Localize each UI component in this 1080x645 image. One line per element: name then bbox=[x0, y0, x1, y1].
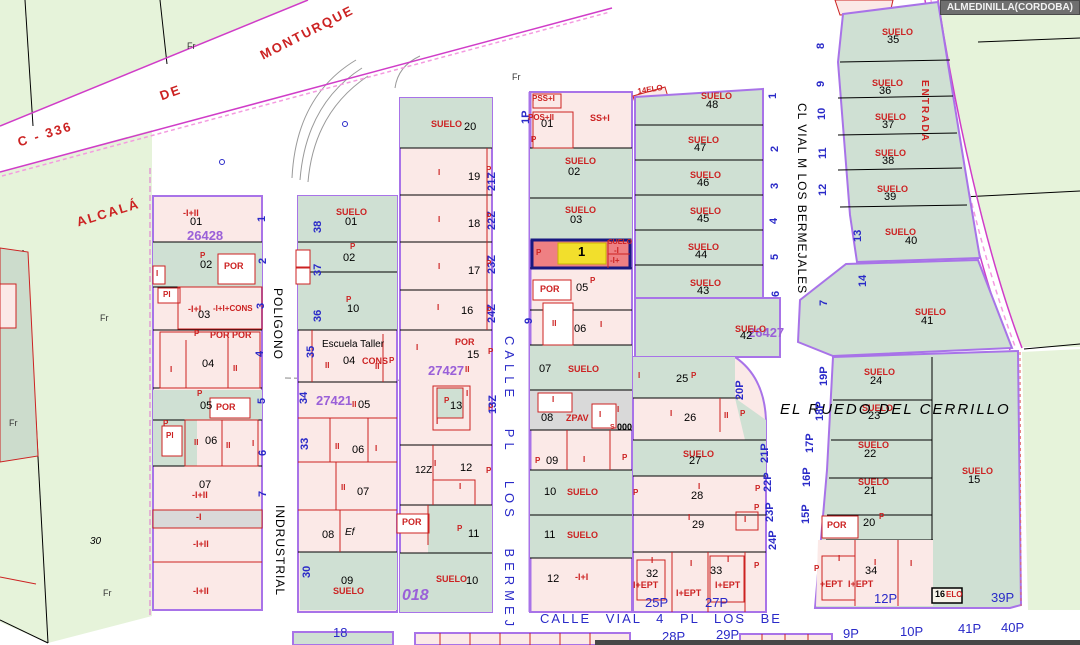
block-d[interactable] bbox=[530, 92, 632, 612]
block-a[interactable] bbox=[153, 196, 262, 610]
parcel-16-label-box bbox=[932, 588, 962, 603]
rustic-parcel-small[interactable] bbox=[0, 284, 16, 328]
selected-parcel-highlight bbox=[558, 243, 606, 264]
municipality-label: ALMEDINILLA(CORDOBA) bbox=[940, 0, 1080, 15]
block-b[interactable] bbox=[296, 196, 397, 612]
block-e[interactable] bbox=[633, 87, 780, 612]
bottom-bar bbox=[595, 640, 1080, 645]
block-c[interactable] bbox=[397, 98, 492, 612]
cadastral-map-viewport[interactable]: C - 336DEMONTURQUEALCALÁFrFrFrFrFr302642… bbox=[0, 0, 1080, 645]
block-g[interactable] bbox=[815, 351, 1021, 608]
cadastral-map-canvas[interactable] bbox=[0, 0, 1080, 645]
